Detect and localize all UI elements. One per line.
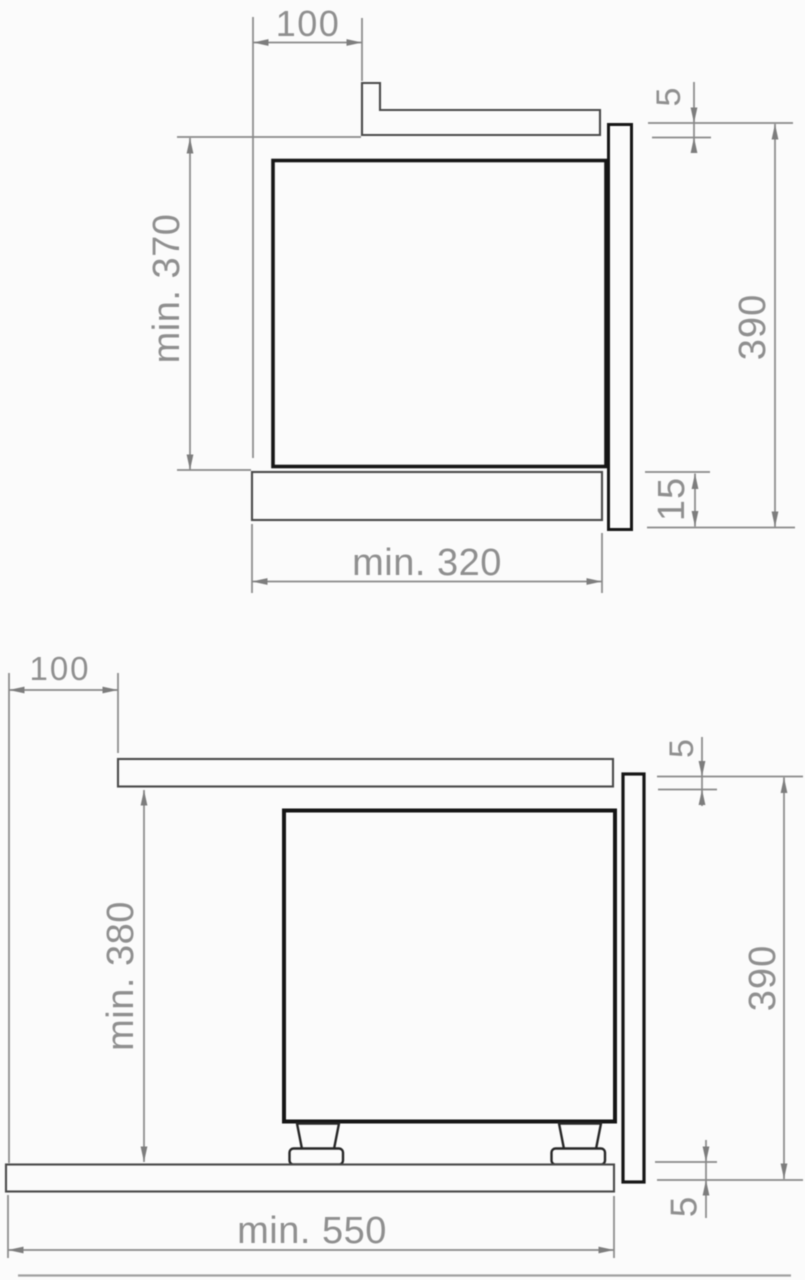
svg-text:min. 380: min. 380	[100, 901, 142, 1051]
svg-text:5: 5	[664, 1197, 705, 1218]
svg-text:15: 15	[651, 477, 693, 521]
svg-text:100: 100	[29, 650, 90, 687]
svg-text:5: 5	[650, 88, 688, 107]
svg-text:390: 390	[742, 945, 784, 1011]
svg-text:min. 320: min. 320	[352, 542, 502, 584]
svg-text:min. 550: min. 550	[237, 1210, 387, 1252]
svg-text:390: 390	[732, 294, 774, 360]
svg-text:5: 5	[663, 739, 701, 758]
svg-text:100: 100	[276, 3, 341, 44]
svg-text:min. 370: min. 370	[146, 214, 188, 364]
